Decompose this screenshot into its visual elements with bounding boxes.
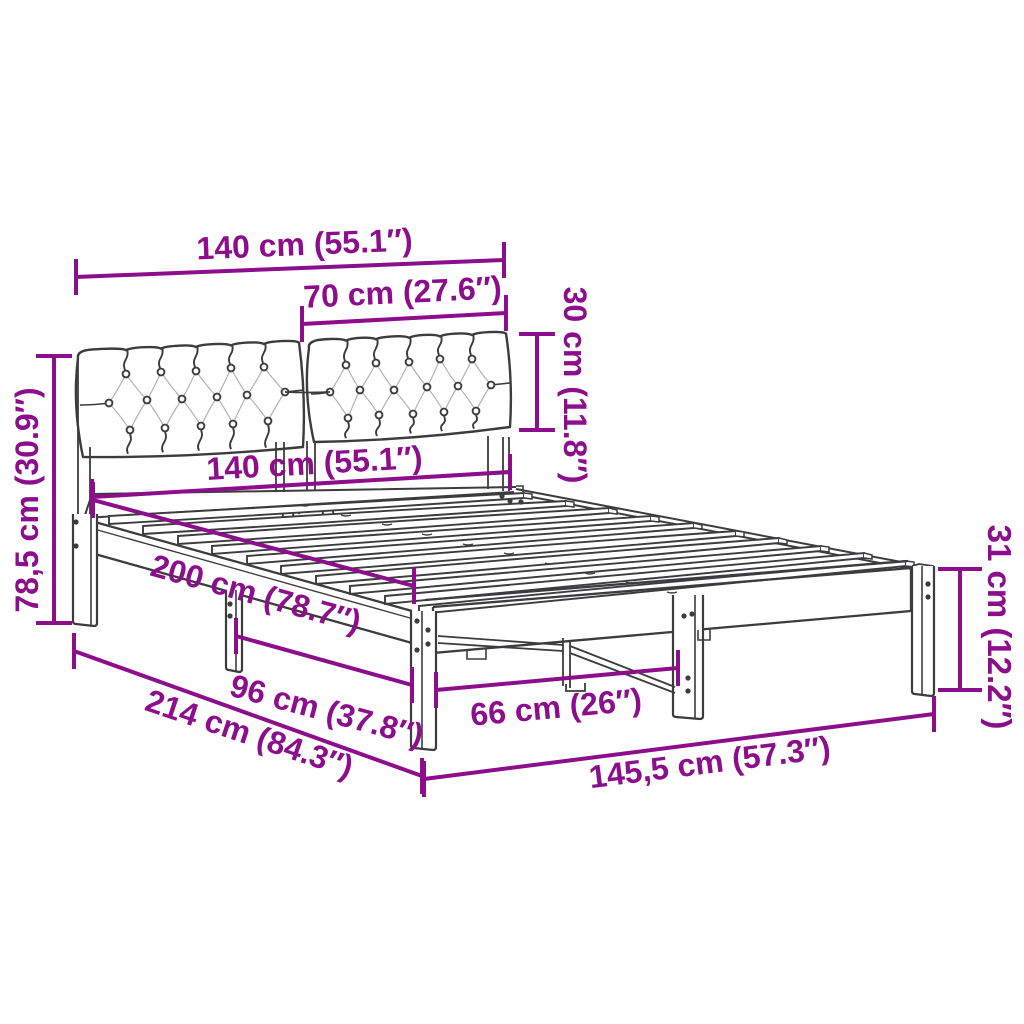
- svg-text:30 cm (11.8″): 30 cm (11.8″): [557, 287, 593, 484]
- svg-text:31 cm (12.2″): 31 cm (12.2″): [981, 525, 1018, 730]
- svg-text:78,5 cm (30.9″): 78,5 cm (30.9″): [9, 387, 45, 612]
